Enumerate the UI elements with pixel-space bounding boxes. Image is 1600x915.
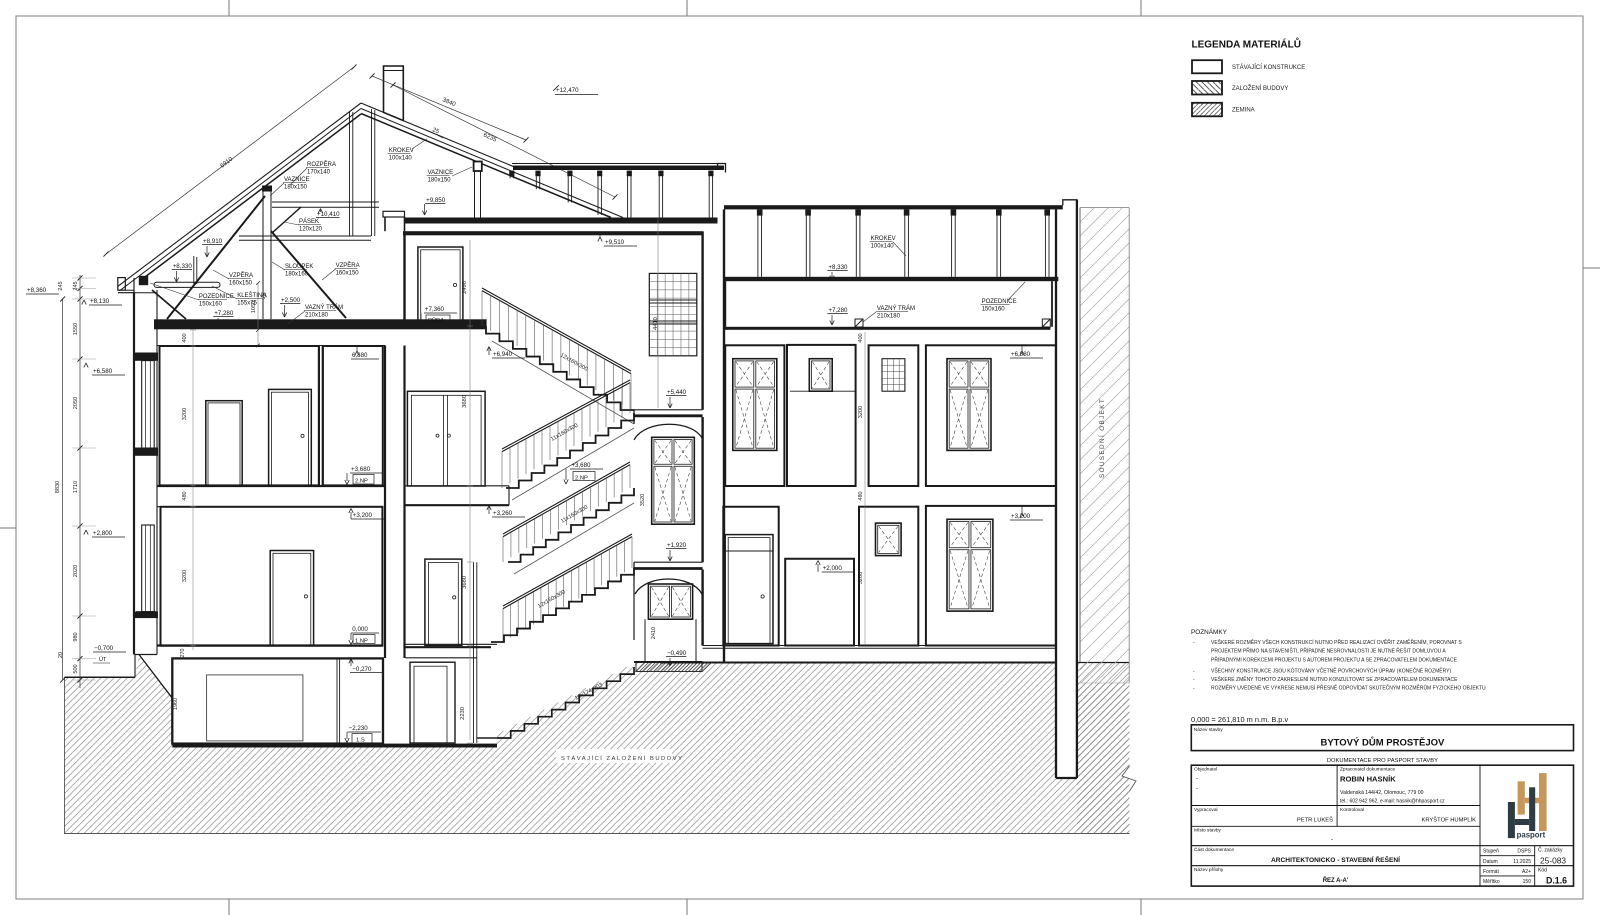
svg-text:VZPĚRA: VZPĚRA (336, 261, 360, 269)
svg-text:155x75: 155x75 (237, 301, 257, 307)
svg-text:Č. zakázky: Č. zakázky (1538, 847, 1563, 854)
svg-text:400: 400 (858, 333, 864, 342)
svg-text:3680: 3680 (462, 395, 468, 408)
svg-text:+3,260: +3,260 (493, 510, 513, 517)
svg-text:PÁSEK: PÁSEK (299, 218, 319, 225)
svg-text:3200: 3200 (182, 408, 188, 420)
svg-text:3200: 3200 (858, 406, 864, 418)
svg-text:+6,940: +6,940 (493, 351, 513, 358)
svg-text:2050: 2050 (73, 397, 79, 409)
svg-text:ROZMĚRY UVEDENÉ VE VÝKRESE NEM: ROZMĚRY UVEDENÉ VE VÝKRESE NEMUSÍ PŘESNĚ… (1211, 684, 1486, 692)
svg-text:Kód: Kód (1538, 868, 1547, 874)
svg-text:KROKEV: KROKEV (871, 236, 896, 242)
svg-text:6,880: 6,880 (352, 352, 368, 359)
svg-text:-: - (1196, 786, 1198, 792)
svg-text:POZNÁMKY: POZNÁMKY (1191, 627, 1228, 636)
svg-text:KRYŠTOF HUMPLÍK: KRYŠTOF HUMPLÍK (1421, 817, 1476, 824)
svg-text:3200: 3200 (182, 570, 188, 582)
svg-text:+10,410: +10,410 (317, 211, 340, 218)
svg-text:1.S: 1.S (356, 738, 365, 744)
svg-text:Datum: Datum (1483, 859, 1498, 865)
svg-text:8830: 8830 (55, 481, 61, 493)
svg-text:180x150: 180x150 (284, 185, 308, 191)
svg-text:150: 150 (1523, 879, 1532, 885)
svg-text:2.NP: 2.NP (355, 479, 368, 485)
svg-text:Kontroloval: Kontroloval (1340, 807, 1364, 813)
svg-text:PROJEKTEM PŘÍMO NA STAVENIŠTI,: PROJEKTEM PŘÍMO NA STAVENIŠTI, PŘÍPADNÉ … (1211, 647, 1446, 655)
svg-text:20: 20 (58, 652, 64, 658)
svg-text:VEŠKERÉ ROZMĚRY VŠECH KONSTRUK: VEŠKERÉ ROZMĚRY VŠECH KONSTRUKCÍ NUTNO P… (1211, 638, 1462, 646)
svg-text:2410: 2410 (651, 627, 657, 639)
svg-text:210x180: 210x180 (877, 314, 901, 320)
svg-text:ZEMINA: ZEMINA (1232, 108, 1255, 114)
svg-text:KROKEV: KROKEV (389, 148, 414, 154)
svg-text:Název stavby: Název stavby (1194, 727, 1223, 733)
svg-text:-: - (1331, 836, 1333, 843)
svg-text:11.2025: 11.2025 (1513, 859, 1531, 865)
svg-text:ROBIN HASNÍK: ROBIN HASNÍK (1340, 775, 1396, 784)
svg-text:+8,130: +8,130 (90, 298, 110, 305)
svg-text:+2,800: +2,800 (93, 530, 113, 537)
svg-text:POZEDNICE: POZEDNICE (982, 299, 1017, 305)
svg-text:Valdenská 144/42, Olomouc, 779: Valdenská 144/42, Olomouc, 779 00 (1340, 790, 1424, 796)
svg-text:+3,200: +3,200 (353, 512, 373, 519)
svg-text:170x140: 170x140 (307, 170, 331, 176)
svg-text:A2+: A2+ (1522, 869, 1531, 875)
svg-text:4410: 4410 (653, 317, 659, 330)
svg-text:VAZNÝ TRÁM: VAZNÝ TRÁM (877, 305, 915, 312)
svg-text:1550: 1550 (73, 323, 79, 335)
svg-text:−0,490: −0,490 (667, 650, 687, 657)
svg-text:160x150: 160x150 (229, 281, 253, 287)
svg-text:480: 480 (858, 491, 864, 500)
svg-text:+5,440: +5,440 (667, 389, 687, 396)
svg-text:DSPS: DSPS (1517, 849, 1531, 855)
svg-text:160x150: 160x150 (336, 271, 360, 277)
svg-text:180x150: 180x150 (428, 178, 452, 184)
svg-text:-: - (1196, 776, 1198, 782)
svg-text:Formát: Formát (1483, 869, 1499, 875)
svg-text:400: 400 (182, 333, 188, 342)
svg-text:+1,920: +1,920 (667, 542, 687, 549)
svg-text:+9,850: +9,850 (426, 197, 446, 204)
svg-text:BYTOVÝ DŮM PROSTĚJOV: BYTOVÝ DŮM PROSTĚJOV (1320, 737, 1445, 749)
svg-text:+8,360: +8,360 (27, 287, 47, 294)
svg-text:Zpracovatel dokumentace: Zpracovatel dokumentace (1340, 767, 1396, 773)
svg-text:VZPĚRA: VZPĚRA (229, 271, 253, 279)
svg-text:+3,200: +3,200 (1011, 513, 1031, 520)
svg-text:KLEŠTINA: KLEŠTINA (237, 292, 266, 299)
svg-text:VŠECHNY KONSTRUKCE JSOU KÓTOVÁ: VŠECHNY KONSTRUKCE JSOU KÓTOVÁNY VČETNĚ … (1211, 666, 1451, 674)
svg-text:tel.: 602 942 962, e-mail: has: tel.: 602 942 962, e-mail: hasnik@hhpasp… (1340, 799, 1445, 805)
svg-text:D.1.6: D.1.6 (1546, 876, 1567, 886)
svg-text:980: 980 (73, 632, 79, 641)
svg-text:+3,680: +3,680 (571, 462, 591, 469)
svg-text:ŘEZ A-A': ŘEZ A-A' (1323, 876, 1349, 884)
svg-text:100x140: 100x140 (871, 244, 895, 250)
svg-text:3520: 3520 (640, 494, 646, 506)
svg-text:180x160: 180x160 (285, 272, 309, 278)
svg-text:PŮDA: PŮDA (428, 317, 444, 324)
svg-text:120x120: 120x120 (299, 227, 323, 233)
svg-text:100x140: 100x140 (389, 156, 413, 162)
svg-text:VAZNÝ TRÁM: VAZNÝ TRÁM (305, 304, 343, 311)
svg-text:+8,330: +8,330 (173, 263, 193, 270)
svg-text:0,000 = 261,810 m n.m. B.: 0,000 = 261,810 m n.m. B.p.v (1191, 715, 1288, 724)
svg-text:480: 480 (182, 491, 188, 500)
svg-text:LEGENDA MATERIÁLŮ: LEGENDA MATERIÁLŮ (1192, 37, 1301, 51)
svg-text:270: 270 (180, 649, 186, 658)
svg-text:25-083: 25-083 (1540, 856, 1566, 866)
svg-text:ROZPĚRA: ROZPĚRA (307, 160, 336, 168)
svg-text:STÁVAJÍCÍ ZALOŽENÍ BUDOVY: STÁVAJÍCÍ ZALOŽENÍ BUDOVY (561, 754, 683, 762)
svg-text:210x180: 210x180 (305, 313, 329, 319)
svg-text:2020: 2020 (73, 565, 79, 577)
svg-text:3680: 3680 (462, 576, 468, 589)
svg-text:SOUSEDNÍ OBJEKT: SOUSEDNÍ OBJEKT (1097, 398, 1106, 478)
svg-text:PETR LUKEŠ: PETR LUKEŠ (1297, 817, 1333, 824)
svg-text:ÚT: ÚT (99, 656, 107, 663)
svg-text:Část dokumentace: Část dokumentace (1194, 846, 1234, 853)
svg-text:+12,470: +12,470 (556, 87, 579, 94)
svg-text:500: 500 (73, 664, 79, 673)
svg-text:SLOUPEK: SLOUPEK (285, 264, 313, 270)
svg-text:ARCHITEKTONICKO - STAVEBNÍ ŘEŠ: ARCHITEKTONICKO - STAVEBNÍ ŘEŠENÍ (1271, 855, 1400, 864)
svg-text:Měřítko: Měřítko (1483, 879, 1500, 885)
svg-text:Vypracoval: Vypracoval (1194, 807, 1218, 813)
svg-text:+6,580: +6,580 (93, 368, 113, 375)
svg-text:+7,280: +7,280 (828, 307, 848, 314)
svg-text:1960: 1960 (173, 698, 179, 710)
svg-text:VAZNICE: VAZNICE (428, 170, 454, 176)
svg-text:+8,910: +8,910 (203, 238, 223, 245)
svg-text:ZALOŽENÍ BUDOVY: ZALOŽENÍ BUDOVY (1232, 84, 1288, 92)
svg-text:DOKUMENTACE PRO PASPORT STAVBY: DOKUMENTACE PRO PASPORT STAVBY (1327, 758, 1438, 764)
svg-text:−0,700: −0,700 (94, 645, 114, 652)
svg-text:1710: 1710 (73, 481, 79, 493)
svg-text:−2,230: −2,230 (349, 725, 369, 732)
svg-text:150x160: 150x160 (982, 307, 1006, 313)
svg-text:+3,680: +3,680 (351, 466, 371, 473)
svg-text:3200: 3200 (858, 572, 864, 584)
svg-text:PŘÍPADNÝMI KOREKCEMI PROJEKTU: PŘÍPADNÝMI KOREKCEMI PROJEKTU S AUTOREM … (1211, 655, 1458, 663)
svg-text:Objednatel: Objednatel (1194, 767, 1217, 773)
svg-text:+2,500: +2,500 (281, 297, 301, 304)
svg-text:0,000: 0,000 (352, 626, 368, 633)
svg-text:+9,510: +9,510 (605, 239, 625, 246)
svg-text:pasport: pasport (1517, 831, 1546, 840)
svg-text:Místo stavby: Místo stavby (1194, 828, 1222, 834)
svg-text:150x160: 150x160 (199, 302, 223, 308)
svg-text:+6,880: +6,880 (1011, 351, 1031, 358)
svg-text:+2,000: +2,000 (823, 565, 843, 572)
svg-text:VEŠKERÉ ZMĚNY TOHOTO ZAKRESLEN: VEŠKERÉ ZMĚNY TOHOTO ZAKRESLENÍ NUTNO KO… (1211, 675, 1458, 683)
svg-text:+7,360: +7,360 (425, 306, 445, 313)
svg-text:STÁVAJÍCÍ KONSTRUKCE: STÁVAJÍCÍ KONSTRUKCE (1232, 64, 1305, 71)
svg-text:245: 245 (58, 281, 64, 290)
svg-text:Název přílohy: Název přílohy (1194, 867, 1224, 873)
svg-text:VAZNICE: VAZNICE (284, 177, 310, 183)
svg-text:−0,270: −0,270 (352, 666, 372, 673)
svg-text:+8,330: +8,330 (828, 264, 848, 271)
svg-text:2490: 2490 (462, 281, 468, 294)
svg-text:2230: 2230 (460, 707, 466, 720)
svg-text:245: 245 (73, 281, 79, 290)
svg-text:Stupeň: Stupeň (1483, 849, 1499, 855)
svg-text:+7,280: +7,280 (214, 310, 234, 317)
